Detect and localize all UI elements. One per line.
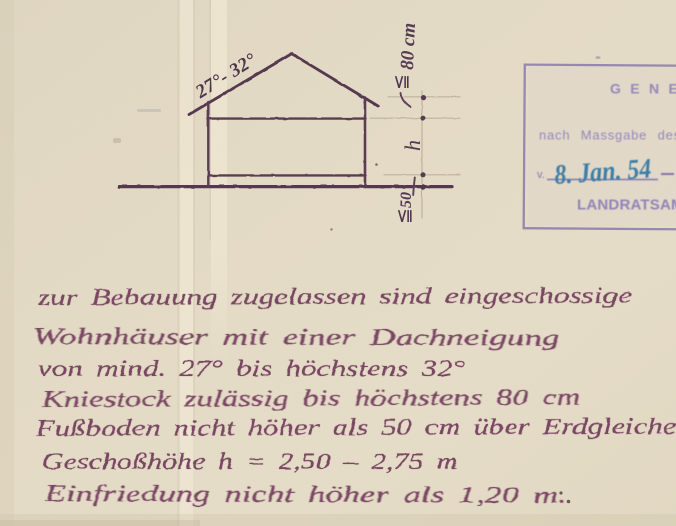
svg-text:27°- 32°: 27°- 32° <box>191 49 260 103</box>
svg-text:GENEH: GENEH <box>610 81 676 97</box>
svg-text:50: 50 <box>398 192 415 208</box>
svg-text:80 cm: 80 cm <box>397 22 420 70</box>
svg-text:≦: ≦ <box>394 208 415 224</box>
svg-text:h: h <box>400 140 425 151</box>
svg-text:v.: v. <box>537 169 545 181</box>
svg-text:LANDRATSAMT: LANDRATSAMT <box>577 197 676 214</box>
svg-text:≦: ≦ <box>391 74 412 90</box>
svg-text:nach Massgabe des: nach Massgabe des <box>539 128 676 143</box>
